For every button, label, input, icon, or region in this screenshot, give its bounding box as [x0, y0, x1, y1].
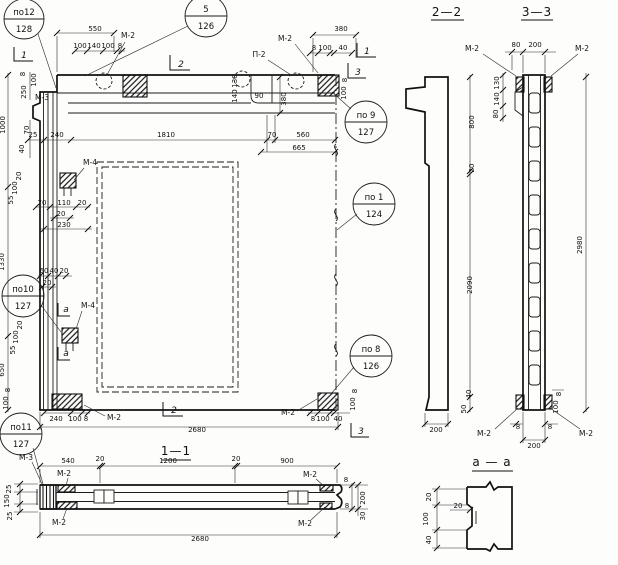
- callout-po9-sheet: 127: [358, 128, 374, 138]
- dim-rc-100: 100: [340, 86, 348, 99]
- dim-m4u-55: 55: [7, 196, 15, 205]
- label-p2: П-2: [252, 50, 265, 59]
- detail-notch-edge: [467, 487, 472, 549]
- dim-665: 665: [292, 144, 305, 152]
- embed-m2-top-right: [318, 75, 339, 96]
- dim-8-rt: 8: [344, 476, 348, 484]
- dim-aa-20b: 20: [454, 502, 463, 510]
- embeds: [52, 71, 339, 410]
- dim-8-bl: 8: [516, 423, 520, 431]
- drawing-sheet: 1 2 1 3 2 3 а а по12 128 5 126 по 9 127 …: [0, 0, 618, 565]
- dim-70: 70: [268, 131, 277, 139]
- dim-8-rv: 8: [555, 392, 563, 396]
- dim-bl-100: 100: [2, 396, 10, 409]
- embed-11-right-top: [320, 485, 333, 491]
- label-m3-11: М-3: [19, 453, 33, 462]
- dim-aa-100: 100: [422, 512, 430, 525]
- dim-m4l-100: 100: [12, 330, 20, 343]
- dim-2680-11: 2680: [191, 535, 209, 543]
- dim-900: 900: [280, 457, 293, 465]
- front-texts: 550 100 140 100 8 М-2 П-2 М-2 380 8 100 …: [0, 25, 359, 434]
- dim-aa-40: 40: [425, 536, 433, 545]
- dim-bl-240: 240: [49, 415, 62, 423]
- dim-bl-8: 8: [4, 388, 12, 392]
- dim-m4u-110: 110: [57, 199, 70, 207]
- dim-1330: 1330: [0, 253, 6, 271]
- dim-bl-100b: 100: [68, 415, 81, 423]
- section-flag-1: 1: [21, 51, 27, 61]
- dim-540: 540: [61, 457, 74, 465]
- dim-140: 140: [493, 92, 501, 105]
- dim-notch-140: 140: [231, 89, 239, 102]
- dim-m4l-20: 20: [16, 321, 24, 330]
- embed-m2-top-left: [123, 75, 147, 97]
- dim-20a: 20: [96, 455, 105, 463]
- dim-100: 100: [73, 42, 86, 50]
- dim-corner-100: 100: [30, 73, 38, 86]
- callout-po1-pos: по 1: [365, 193, 384, 203]
- label-m2-11-tl: М-2: [57, 469, 71, 478]
- dim-step-40: 40: [18, 145, 26, 154]
- section-flag-1b: 1: [364, 47, 370, 57]
- top-ledge-lines: [57, 75, 335, 113]
- dim-m4u-20c: 20: [57, 210, 66, 218]
- section-1-1-title: 1—1: [161, 444, 191, 458]
- callout-po8-sheet: 126: [363, 362, 379, 372]
- right-end-profile: [335, 485, 342, 509]
- dim-step-70: 70: [23, 126, 31, 135]
- embed-m4-upper: [60, 173, 76, 188]
- dim-br-100v: 100: [349, 397, 357, 410]
- dim-100b: 100: [101, 42, 114, 50]
- label-m2-11-br: М-2: [298, 519, 312, 528]
- dim-rc-8: 8: [341, 78, 349, 82]
- panel-outline: [33, 75, 337, 410]
- dim-200: 200: [429, 426, 442, 434]
- dim-corner-250: 250: [20, 85, 28, 98]
- section-2-2: 2—2 800 20 2090 40 50 200: [406, 5, 476, 434]
- detail-a-a-title: а — а: [472, 455, 511, 469]
- label-m2-33-bl: М-2: [477, 429, 491, 438]
- dim-m4u-230: 230: [57, 221, 70, 229]
- callout-po12-sheet: 128: [16, 25, 32, 35]
- dim-mid-20: 20: [60, 267, 69, 275]
- callout-po10-pos: по10: [12, 285, 34, 295]
- embed-m4-lower: [62, 328, 78, 343]
- callout-po10-sheet: 127: [15, 302, 31, 312]
- section-2-2-title: 2—2: [432, 5, 462, 19]
- section-3-3: 3—3 80 200 М-2 М-2 130 140 80 2980 8 8 2…: [465, 5, 593, 450]
- section-flag-3b: 3: [358, 427, 364, 437]
- dim-550: 550: [88, 25, 101, 33]
- label-m3: М-3: [35, 93, 49, 102]
- callout-po12-pos: по12: [13, 8, 35, 18]
- embed-m2-bottom-right: [318, 393, 338, 410]
- section-flag-2: 2: [178, 60, 184, 70]
- dim-200-bottom: 200: [527, 442, 540, 450]
- dim-2090: 2090: [466, 276, 474, 294]
- dim-1000: 1000: [0, 116, 7, 134]
- dim-200-r: 200: [359, 491, 367, 504]
- label-m2-11-bl: М-2: [52, 518, 66, 527]
- dim-m4l-55: 55: [9, 346, 17, 355]
- front-view: 1 2 1 3 2 3 а а по12 128 5 126 по 9 127 …: [0, 0, 395, 484]
- label-m2-33-br: М-2: [579, 429, 593, 438]
- dim-notch-90: 90: [255, 92, 264, 100]
- opening: [97, 162, 238, 392]
- dim-240: 240: [50, 131, 63, 139]
- label-m2-bottom-right: М-2: [281, 408, 295, 417]
- label-m4-upper: М-4: [83, 158, 97, 167]
- embed-33-bottom-left: [516, 395, 524, 409]
- hollow-voids: [529, 93, 540, 385]
- dim-650: 650: [0, 363, 6, 376]
- section-flag-2b: 2: [171, 406, 177, 416]
- section-3-3-title: 3—3: [522, 5, 552, 19]
- label-m2-33-tl: М-2: [465, 44, 479, 53]
- dim-1200: 1200: [159, 457, 177, 465]
- dim-8-rb: 8: [345, 502, 349, 510]
- embed-m2-bottom-left: [52, 394, 82, 409]
- callout-po8: по 8 126: [350, 335, 392, 377]
- dim-200-top: 200: [528, 41, 541, 49]
- label-m2-11-tr: М-2: [303, 470, 317, 479]
- dim-m4u-20b: 20: [78, 199, 87, 207]
- dim-25b: 25: [6, 512, 14, 521]
- dim-30-r: 30: [359, 512, 367, 521]
- dim-br-40: 40: [334, 415, 343, 423]
- dim-mid-40: 40: [50, 267, 59, 275]
- label-m2-top-left: М-2: [121, 31, 135, 40]
- dim-80-top: 80: [512, 41, 521, 49]
- dim-40r: 40: [339, 44, 348, 52]
- embed-33-top-left: [516, 77, 524, 92]
- dim-2980: 2980: [576, 236, 584, 254]
- label-m4-lower: М-4: [81, 301, 95, 310]
- dim-800: 800: [468, 115, 476, 128]
- dim-8: 8: [118, 42, 122, 50]
- dimension-lines: [5, 30, 359, 430]
- dim-br-8v: 8: [351, 389, 359, 393]
- dim-140: 140: [87, 42, 100, 50]
- callout-po12: по12 128: [4, 0, 44, 39]
- section-2-2-outline: [406, 77, 448, 410]
- callout-po1-sheet: 124: [366, 210, 382, 220]
- dim-8-br: 8: [548, 423, 552, 431]
- section-flag-3: 3: [355, 68, 361, 78]
- embed-33-top-right: [544, 77, 552, 92]
- dim-8r: 8: [312, 44, 316, 52]
- embed-11-right-bottom: [320, 503, 332, 509]
- dim-2680: 2680: [188, 426, 206, 434]
- dim-130: 130: [493, 76, 501, 89]
- dim-aa-20: 20: [425, 493, 433, 502]
- dim-corner-8: 8: [19, 72, 27, 76]
- dim-20: 20: [468, 164, 476, 173]
- callout-po11: по11 127: [0, 413, 42, 455]
- dim-20b: 20: [232, 455, 241, 463]
- dim-100-rv: 100: [552, 400, 560, 413]
- dim-100r: 100: [318, 44, 331, 52]
- callout-5: 5 126: [185, 0, 227, 37]
- dim-1810: 1810: [157, 131, 175, 139]
- technical-drawing: 1 2 1 3 2 3 а а по12 128 5 126 по 9 127 …: [0, 0, 618, 565]
- dim-40: 40: [465, 390, 473, 399]
- callout-po9: по 9 127: [345, 101, 387, 143]
- embed-m3-end: [40, 485, 56, 509]
- callout-po11-pos: по11: [10, 423, 32, 433]
- dim-25a: 25: [5, 485, 13, 494]
- callout-po11-sheet: 127: [13, 440, 29, 450]
- dim-380: 380: [334, 25, 347, 33]
- embed-33-bottom-right: [544, 395, 552, 409]
- callout-5-sheet: 126: [198, 22, 214, 32]
- detail-a-a: а — а 20 100 40 20: [422, 455, 513, 551]
- label-m2-33-tr: М-2: [575, 44, 589, 53]
- dim-80: 80: [492, 110, 500, 119]
- dim-mid-20b: 20: [43, 279, 52, 287]
- section-1-1: 1—1 540 20 1200 20 900 М-3 25 150 25 М-2…: [3, 444, 368, 543]
- dim-mid-60: 60: [40, 267, 49, 275]
- dim-m4u-70: 70: [38, 199, 47, 207]
- dim-m4u-100: 100: [11, 181, 19, 194]
- dim-br-100: 100: [316, 415, 329, 423]
- dim-br-8: 8: [311, 415, 315, 423]
- callout-5-pos: 5: [203, 5, 208, 15]
- callout-po1: по 1 124: [353, 183, 395, 225]
- embed-11-top: [58, 485, 75, 492]
- callout-po10: по10 127: [2, 275, 44, 317]
- section-flag-a: а: [63, 305, 69, 315]
- dim-m4u-20: 20: [15, 172, 23, 181]
- label-m2-bottom-left: М-2: [107, 413, 121, 422]
- dim-50: 50: [460, 405, 468, 414]
- callout-po9-pos: по 9: [357, 111, 376, 121]
- callout-po8-pos: по 8: [362, 345, 381, 355]
- dim-150: 150: [3, 494, 11, 507]
- dim-notch-380: 380: [280, 92, 288, 105]
- label-m2-top-right: М-2: [278, 34, 292, 43]
- dim-560: 560: [296, 131, 309, 139]
- detail-outline: [467, 482, 512, 551]
- dim-bl-8b: 8: [84, 415, 88, 423]
- dim-notch-130: 130: [231, 74, 239, 87]
- section-flags: 1 2 1 3 2 3 а а: [14, 43, 376, 437]
- section-flag-a2: а: [63, 349, 69, 359]
- embed-11-bottom: [57, 502, 77, 509]
